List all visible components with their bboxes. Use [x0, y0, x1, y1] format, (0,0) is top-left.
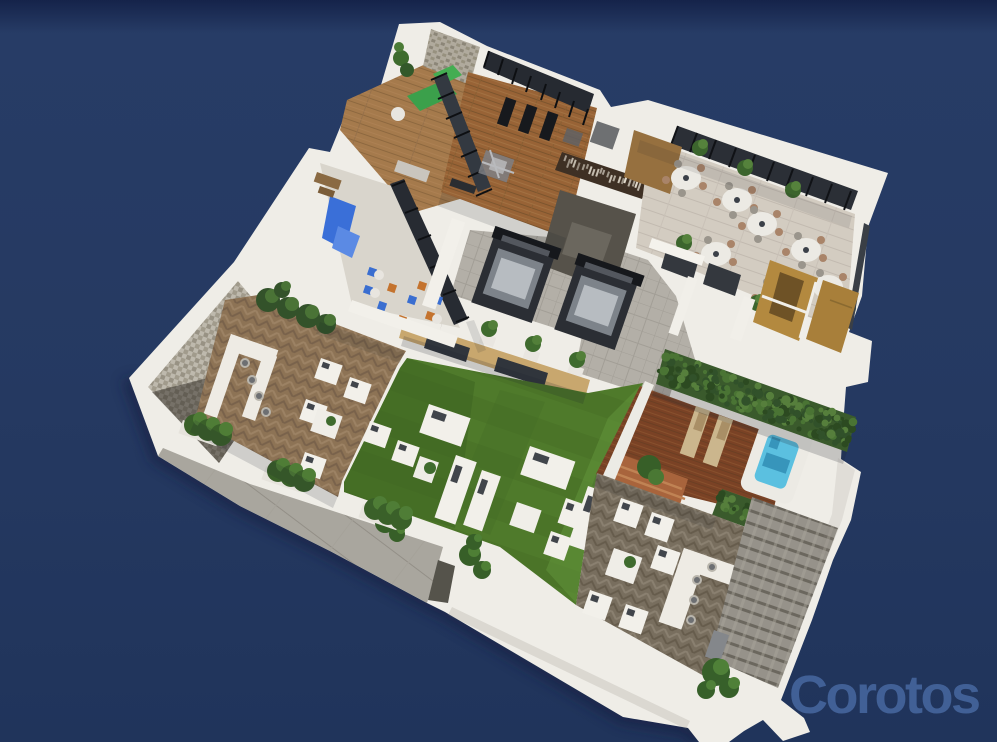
svg-text:Corotos: Corotos [789, 665, 979, 725]
